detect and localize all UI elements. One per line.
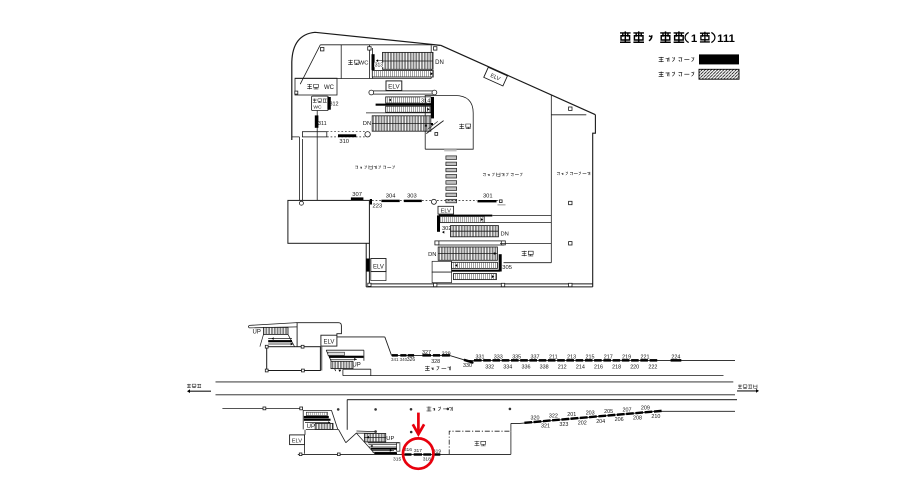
- svg-text:333: 333: [494, 354, 503, 360]
- svg-text:ELV: ELV: [441, 208, 452, 214]
- svg-text:201: 201: [567, 412, 576, 418]
- svg-text:203: 203: [586, 411, 595, 417]
- svg-text:215: 215: [586, 354, 595, 360]
- svg-text:217: 217: [604, 354, 613, 360]
- svg-text:219: 219: [622, 354, 631, 360]
- svg-text:209: 209: [641, 406, 650, 412]
- svg-text:305: 305: [502, 265, 512, 271]
- svg-text:DN: DN: [363, 121, 371, 127]
- svg-text:336: 336: [522, 364, 531, 370]
- svg-text:ELV: ELV: [373, 264, 384, 270]
- svg-text:220: 220: [630, 364, 639, 370]
- svg-text:322: 322: [549, 414, 558, 420]
- svg-text:205: 205: [604, 409, 613, 415]
- svg-text:337: 337: [531, 354, 540, 360]
- svg-text:320: 320: [531, 415, 540, 421]
- svg-text:WC: WC: [359, 61, 369, 67]
- svg-text:312: 312: [330, 102, 339, 108]
- svg-text:211: 211: [549, 354, 558, 360]
- svg-text:224: 224: [671, 354, 680, 360]
- svg-text:222: 222: [648, 364, 657, 370]
- svg-text:223: 223: [373, 203, 383, 209]
- svg-text:332: 332: [485, 364, 494, 370]
- svg-text:111: 111: [717, 33, 735, 45]
- svg-text:ELV: ELV: [323, 339, 334, 345]
- svg-text:204: 204: [596, 419, 605, 425]
- svg-text:321: 321: [541, 424, 550, 430]
- svg-text:326: 326: [407, 357, 416, 363]
- svg-text:UP: UP: [352, 363, 360, 369]
- svg-text:212: 212: [558, 364, 567, 370]
- svg-text:202: 202: [578, 420, 587, 426]
- svg-text:315: 315: [393, 457, 401, 463]
- svg-text:301: 301: [483, 193, 493, 199]
- svg-text:ELV: ELV: [292, 438, 303, 444]
- svg-text:329: 329: [442, 352, 451, 358]
- svg-text:341: 341: [391, 357, 399, 362]
- svg-text:338: 338: [540, 364, 549, 370]
- svg-text:313: 313: [375, 63, 384, 69]
- svg-text:216: 216: [594, 364, 603, 370]
- svg-text:206: 206: [615, 417, 624, 423]
- svg-text:218: 218: [612, 364, 621, 370]
- svg-text:311: 311: [318, 121, 327, 127]
- svg-text:210: 210: [651, 414, 660, 420]
- svg-text:213: 213: [567, 354, 576, 360]
- svg-text:214: 214: [576, 364, 585, 370]
- svg-text:UP: UP: [253, 329, 261, 335]
- svg-text:307: 307: [352, 192, 362, 198]
- svg-text:DN: DN: [435, 60, 444, 66]
- svg-text:310: 310: [339, 139, 349, 145]
- svg-text:221: 221: [641, 354, 650, 360]
- svg-text:WC: WC: [324, 85, 335, 91]
- svg-text:ELV: ELV: [388, 84, 400, 91]
- svg-text:330: 330: [463, 363, 472, 369]
- svg-text:UP: UP: [386, 436, 394, 442]
- svg-text:303: 303: [407, 193, 417, 199]
- svg-text:327: 327: [422, 350, 431, 356]
- svg-text:328: 328: [431, 359, 440, 365]
- svg-text:323: 323: [559, 422, 568, 428]
- svg-text:314: 314: [421, 98, 430, 104]
- svg-text:331: 331: [476, 354, 485, 360]
- svg-text:334: 334: [503, 364, 512, 370]
- svg-text:317: 317: [414, 448, 422, 454]
- svg-text:1: 1: [691, 33, 698, 45]
- svg-text:DN: DN: [501, 231, 509, 237]
- svg-text:WC: WC: [313, 105, 322, 111]
- svg-text:335: 335: [512, 354, 521, 360]
- svg-text:207: 207: [623, 407, 632, 413]
- svg-text:208: 208: [633, 416, 642, 422]
- svg-text:304: 304: [386, 193, 396, 199]
- svg-text:DN: DN: [428, 252, 436, 258]
